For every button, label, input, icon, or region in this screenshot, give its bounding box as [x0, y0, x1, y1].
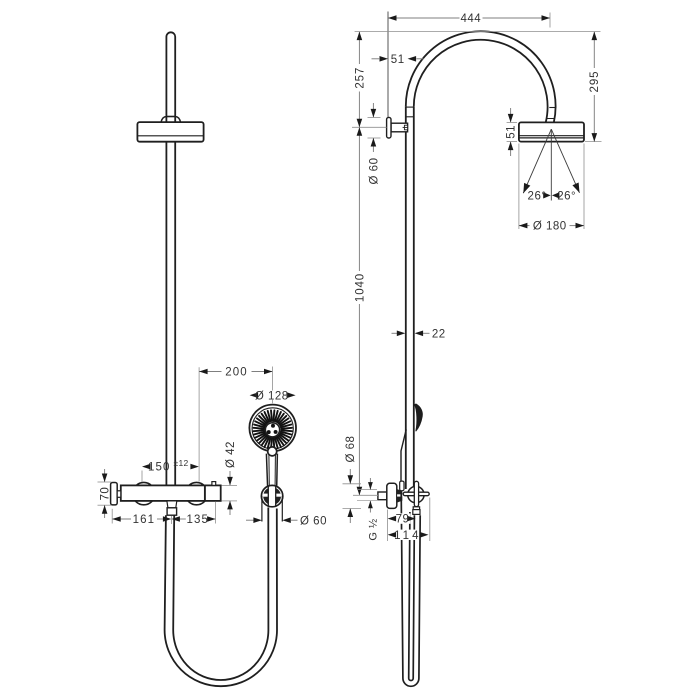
svg-text:±12: ±12: [174, 458, 189, 468]
svg-text:Ø 180: Ø 180: [533, 221, 567, 233]
svg-text:26°: 26°: [557, 191, 576, 203]
svg-text:51: 51: [506, 125, 518, 139]
svg-text:Ø 42: Ø 42: [225, 441, 237, 468]
svg-text:G ½: G ½: [367, 518, 379, 540]
svg-text:295: 295: [589, 71, 601, 93]
svg-text:1040: 1040: [354, 273, 366, 302]
svg-text:135: 135: [187, 514, 210, 526]
svg-text:200: 200: [225, 367, 248, 379]
svg-text:26°: 26°: [528, 191, 547, 203]
svg-text:150: 150: [148, 462, 171, 474]
svg-text:Ø 128: Ø 128: [255, 390, 289, 402]
svg-text:Ø 68: Ø 68: [345, 436, 357, 463]
svg-text:79: 79: [396, 514, 410, 526]
svg-text:Ø 60: Ø 60: [300, 515, 327, 527]
svg-text:70: 70: [100, 487, 112, 501]
svg-text:51: 51: [391, 54, 405, 66]
svg-text:161: 161: [133, 514, 156, 526]
svg-text:22: 22: [432, 328, 446, 340]
svg-text:Ø 60: Ø 60: [368, 158, 380, 185]
svg-text:444: 444: [460, 13, 481, 25]
svg-text:114: 114: [394, 530, 421, 542]
svg-text:257: 257: [354, 67, 366, 89]
